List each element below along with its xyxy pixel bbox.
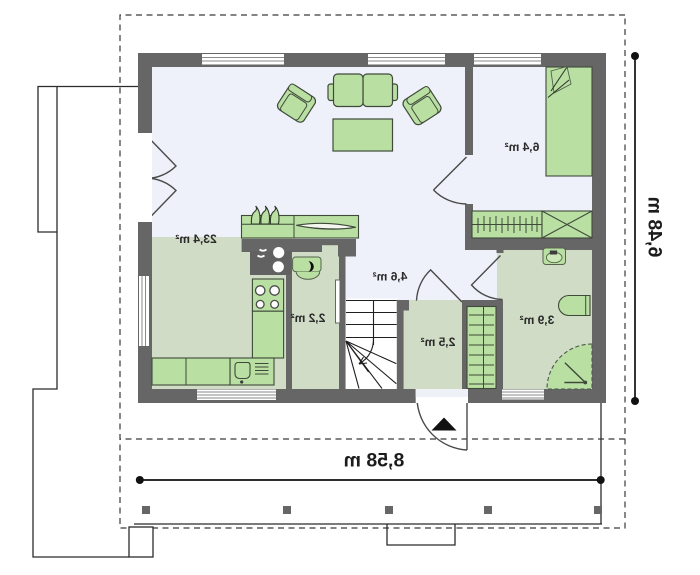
svg-text:2,5 m²: 2,5 m² [421, 335, 456, 349]
svg-text:2,2 m²: 2,2 m² [291, 311, 326, 325]
svg-text:3,9 m²: 3,9 m² [520, 313, 555, 327]
svg-text:6,4 m²: 6,4 m² [505, 140, 540, 154]
svg-text:23,4 m²: 23,4 m² [175, 232, 216, 246]
svg-text:8,58 m: 8,58 m [344, 450, 405, 472]
svg-text:6,48 m: 6,48 m [644, 197, 666, 258]
svg-text:4,6 m²: 4,6 m² [373, 270, 408, 284]
